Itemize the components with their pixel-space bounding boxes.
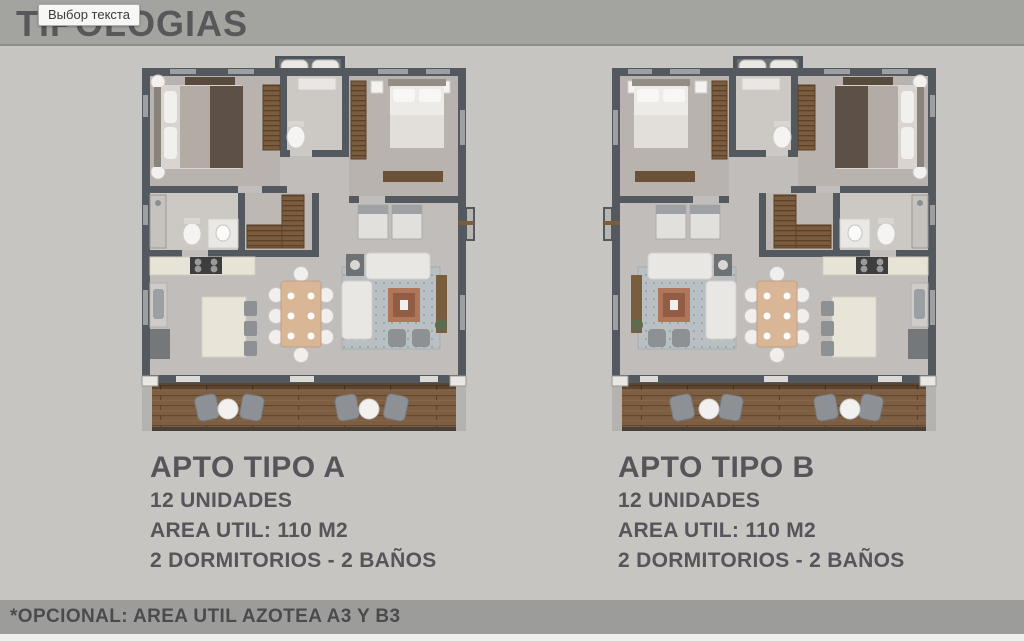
floorplan-apto-tipo-b — [604, 55, 938, 445]
apartment-b-info: APTO TIPO B 12 UNIDADES AREA UTIL: 110 M… — [618, 450, 958, 576]
footer-band: *OPCIONAL: AREA UTIL AZOTEA A3 Y B3 — [0, 600, 1024, 634]
apartment-a-name: APTO TIPO A — [150, 450, 490, 486]
slide: TIPOLOGIAS Выбор текста — [0, 0, 1024, 641]
footer-note: *OPCIONAL: AREA UTIL AZOTEA A3 Y B3 — [10, 600, 401, 634]
bottom-strip — [0, 634, 1024, 641]
text-selection-tooltip: Выбор текста — [38, 4, 140, 26]
apartment-b-name: APTO TIPO B — [618, 450, 958, 486]
floorplan-apto-tipo-a — [140, 55, 474, 445]
apartment-b-bedrooms: 2 DORMITORIOS - 2 BAÑOS — [618, 546, 958, 576]
apartment-a-area: AREA UTIL: 110 M2 — [150, 516, 490, 546]
apartment-b-area: AREA UTIL: 110 M2 — [618, 516, 958, 546]
apartment-b-units: 12 UNIDADES — [618, 486, 958, 516]
apartment-a-info: APTO TIPO A 12 UNIDADES AREA UTIL: 110 M… — [150, 450, 490, 576]
apartment-a-bedrooms: 2 DORMITORIOS - 2 BAÑOS — [150, 546, 490, 576]
apartment-a-units: 12 UNIDADES — [150, 486, 490, 516]
